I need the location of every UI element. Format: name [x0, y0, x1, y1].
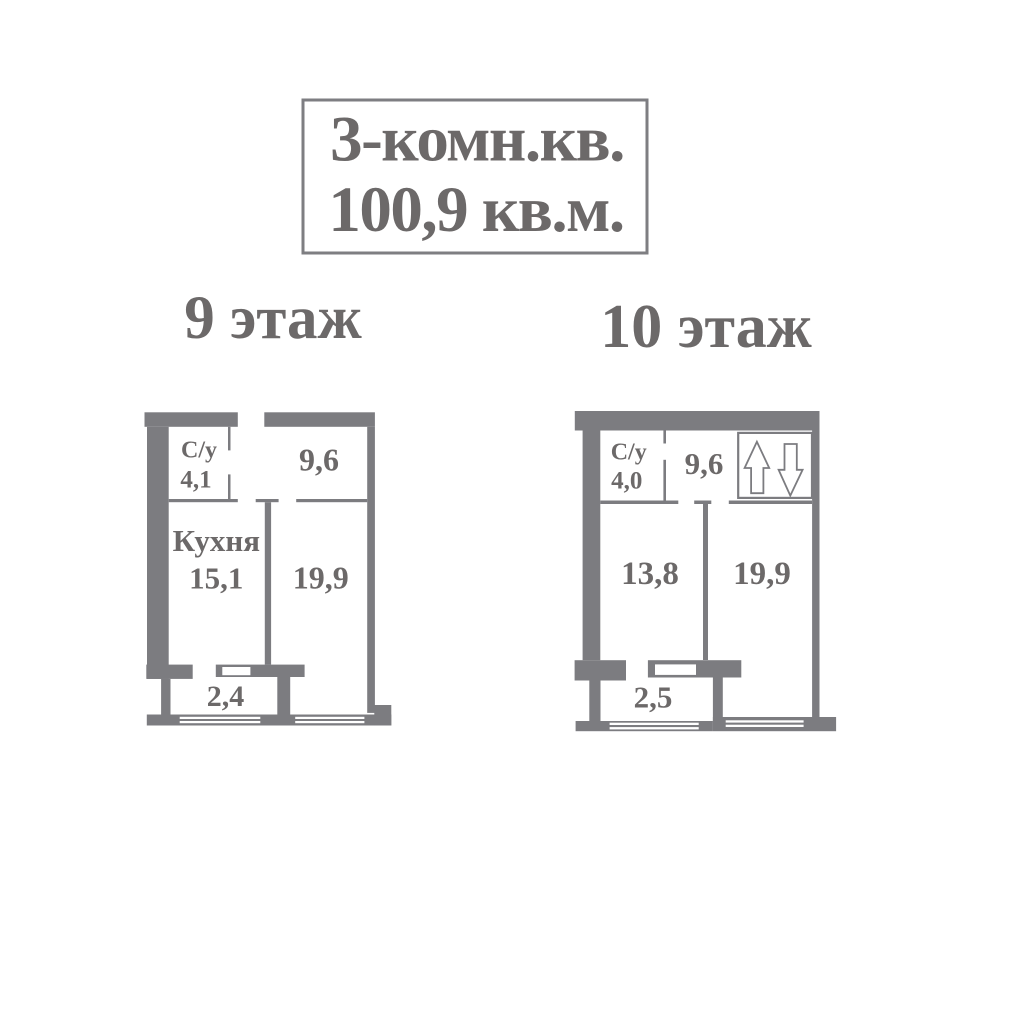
svg-text:2,4: 2,4 — [207, 680, 245, 713]
svg-text:С/у: С/у — [611, 440, 647, 466]
svg-text:9,6: 9,6 — [685, 446, 724, 481]
svg-text:2,5: 2,5 — [634, 680, 673, 715]
svg-text:С/у: С/у — [181, 438, 217, 464]
svg-text:13,8: 13,8 — [621, 556, 679, 592]
svg-text:9 этаж: 9 этаж — [184, 285, 362, 352]
svg-text:100,9 кв.м.: 100,9 кв.м. — [328, 174, 623, 246]
svg-text:9,6: 9,6 — [299, 441, 339, 477]
svg-text:4,1: 4,1 — [180, 466, 211, 493]
svg-text:Кухня: Кухня — [173, 523, 260, 558]
svg-text:10 этаж: 10 этаж — [600, 293, 812, 361]
svg-text:19,9: 19,9 — [733, 556, 791, 592]
svg-text:3-комн.кв.: 3-комн.кв. — [330, 104, 624, 176]
svg-text:15,1: 15,1 — [189, 561, 243, 596]
svg-text:4,0: 4,0 — [611, 468, 642, 495]
svg-text:19,9: 19,9 — [293, 560, 349, 596]
